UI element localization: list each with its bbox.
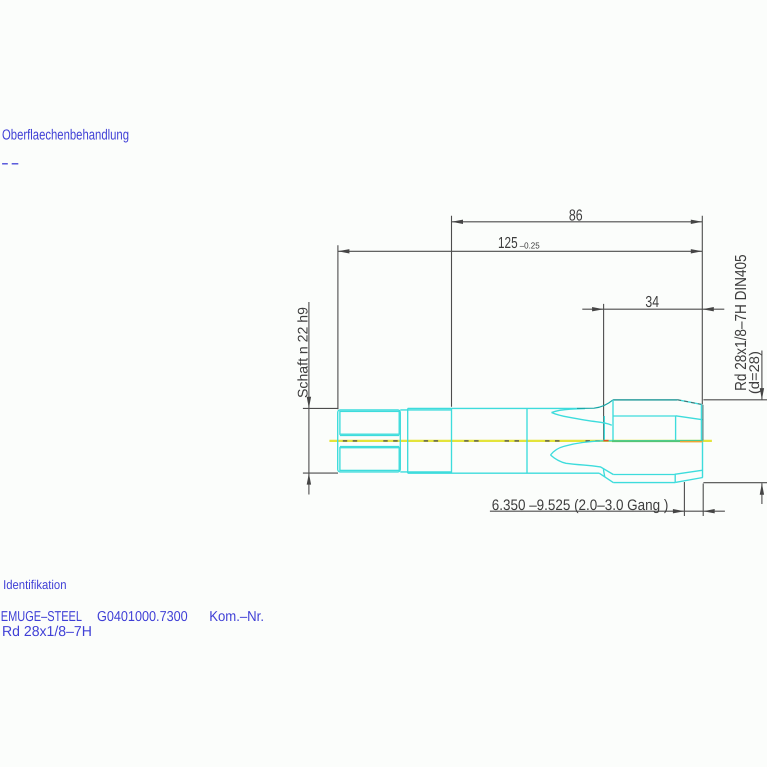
- svg-text:G0401000.7300: G0401000.7300: [97, 609, 188, 625]
- svg-text:(d=28): (d=28): [746, 351, 762, 394]
- svg-text:Identifikation: Identifikation: [3, 577, 66, 592]
- svg-text:Schaft n 22 h9: Schaft n 22 h9: [295, 307, 311, 398]
- svg-text:–0.25: –0.25: [520, 241, 540, 251]
- svg-text:Kom.–Nr.: Kom.–Nr.: [209, 609, 264, 625]
- svg-text:86: 86: [569, 207, 583, 224]
- svg-text:6.350 –9.525 (2.0–3.0 Gang ): 6.350 –9.525 (2.0–3.0 Gang ): [492, 497, 669, 514]
- svg-text:EMUGE–STEEL: EMUGE–STEEL: [1, 609, 82, 625]
- svg-text:125: 125: [498, 235, 518, 252]
- svg-text:Oberflaechenbehandlung: Oberflaechenbehandlung: [2, 127, 129, 143]
- svg-text:34: 34: [645, 294, 659, 311]
- svg-text:Rd 28x1/8–7H: Rd 28x1/8–7H: [2, 624, 92, 640]
